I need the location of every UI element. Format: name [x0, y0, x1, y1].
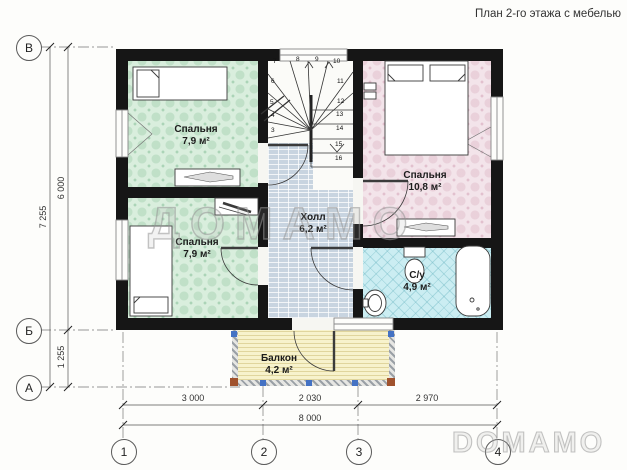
balcony-post-blue	[260, 380, 266, 386]
balcony-post-brown	[230, 378, 238, 386]
door-gap	[258, 143, 268, 183]
label-bedroom-right: Спальня 10,8 м²	[385, 170, 465, 194]
wall-between-bedrooms	[128, 187, 268, 198]
wall-interior-right	[353, 289, 363, 318]
step-number: 5	[270, 100, 274, 107]
watermark-corner: DOMAMO	[452, 427, 605, 460]
window-balcony	[334, 318, 393, 330]
room-name: Спальня	[174, 124, 217, 135]
dim-8000: 8 000	[270, 413, 350, 423]
step-number: 11	[337, 79, 344, 86]
wall-left	[116, 280, 128, 330]
balcony-post-blue	[352, 380, 358, 386]
axis-label: 1	[121, 445, 128, 459]
door-gap	[353, 178, 363, 224]
wall-interior-left	[258, 61, 268, 143]
room-name: Спальня	[175, 237, 218, 248]
door-gap	[258, 247, 268, 285]
room-area: 10,8 м²	[409, 182, 442, 193]
dim-1255: 1 255	[56, 334, 66, 380]
step-number: 7	[273, 59, 277, 66]
floor-hall	[268, 190, 353, 318]
axis-label: Б	[25, 324, 33, 338]
room-name: Спальня	[403, 170, 446, 181]
floor-bedroom-right	[363, 61, 491, 238]
wall-right	[491, 49, 503, 97]
wall-interior-right	[353, 224, 363, 247]
axis-row-a: А	[16, 375, 42, 401]
step-number: 6	[271, 79, 275, 86]
wall-interior-left	[258, 285, 268, 318]
step-number: 10	[333, 59, 340, 66]
room-area: 4,2 м²	[265, 365, 292, 376]
label-bathroom: С/у 4,9 м²	[377, 270, 457, 294]
floor-plan-canvas: План 2-го этажа с мебелью	[0, 0, 627, 470]
wall-bedroom-bathroom	[363, 238, 491, 248]
window-left-bottom	[116, 220, 128, 280]
axis-col-4: 4	[485, 439, 511, 465]
balcony-door-gap	[292, 318, 334, 330]
axis-row-b: Б	[16, 318, 42, 344]
wall-top	[347, 49, 503, 61]
step-number: 8	[296, 57, 300, 64]
axis-row-v: В	[16, 35, 42, 61]
label-bedroom-bottom-left: Спальня 7,9 м²	[157, 237, 237, 261]
room-name: Балкон	[261, 353, 297, 364]
room-area: 4,9 м²	[403, 282, 430, 293]
dim-2970: 2 970	[387, 393, 467, 403]
room-area: 7,9 м²	[183, 249, 210, 260]
balcony-post-blue	[231, 331, 237, 337]
room-name: С/у	[409, 270, 425, 281]
balcony-post-blue	[306, 380, 312, 386]
room-name: Холл	[300, 212, 325, 223]
dim-6000: 6 000	[56, 165, 66, 211]
wall-right	[491, 160, 503, 330]
step-number: 9	[315, 57, 319, 64]
axis-label: 3	[356, 445, 363, 459]
room-area: 7,9 м²	[182, 136, 209, 147]
axis-col-2: 2	[251, 439, 277, 465]
axis-label: 4	[495, 445, 502, 459]
room-area: 6,2 м²	[299, 224, 326, 235]
step-number: 3	[271, 128, 275, 135]
step-number: 14	[336, 126, 343, 133]
wall-bottom	[393, 318, 503, 330]
wall-left	[116, 157, 128, 220]
step-number: 15	[335, 142, 342, 149]
step-number: 13	[336, 112, 343, 119]
axis-label: 2	[261, 445, 268, 459]
wall-top	[116, 49, 280, 61]
axis-col-1: 1	[111, 439, 137, 465]
label-hall: Холл 6,2 м²	[273, 212, 353, 236]
label-bedroom-top-left: Спальня 7,9 м²	[156, 124, 236, 148]
step-number: 4	[271, 113, 275, 120]
page-title: План 2-го этажа с мебелью	[475, 8, 621, 20]
balcony-post-blue	[388, 331, 394, 337]
step-number: 16	[335, 156, 342, 163]
step-number: 12	[337, 99, 344, 106]
floor-hall-extension	[268, 143, 313, 190]
balcony-post-brown	[387, 378, 395, 386]
dim-3000: 3 000	[153, 393, 233, 403]
wall-interior-right	[353, 61, 363, 178]
label-balcony: Балкон 4,2 м²	[239, 353, 319, 377]
door-gap	[353, 247, 363, 289]
wall-left	[116, 49, 128, 110]
axis-col-3: 3	[346, 439, 372, 465]
dim-7255: 7 255	[38, 194, 48, 240]
wall-bottom	[116, 318, 292, 330]
dim-2030: 2 030	[270, 393, 350, 403]
axis-label: А	[25, 381, 33, 395]
axis-label: В	[25, 41, 33, 55]
